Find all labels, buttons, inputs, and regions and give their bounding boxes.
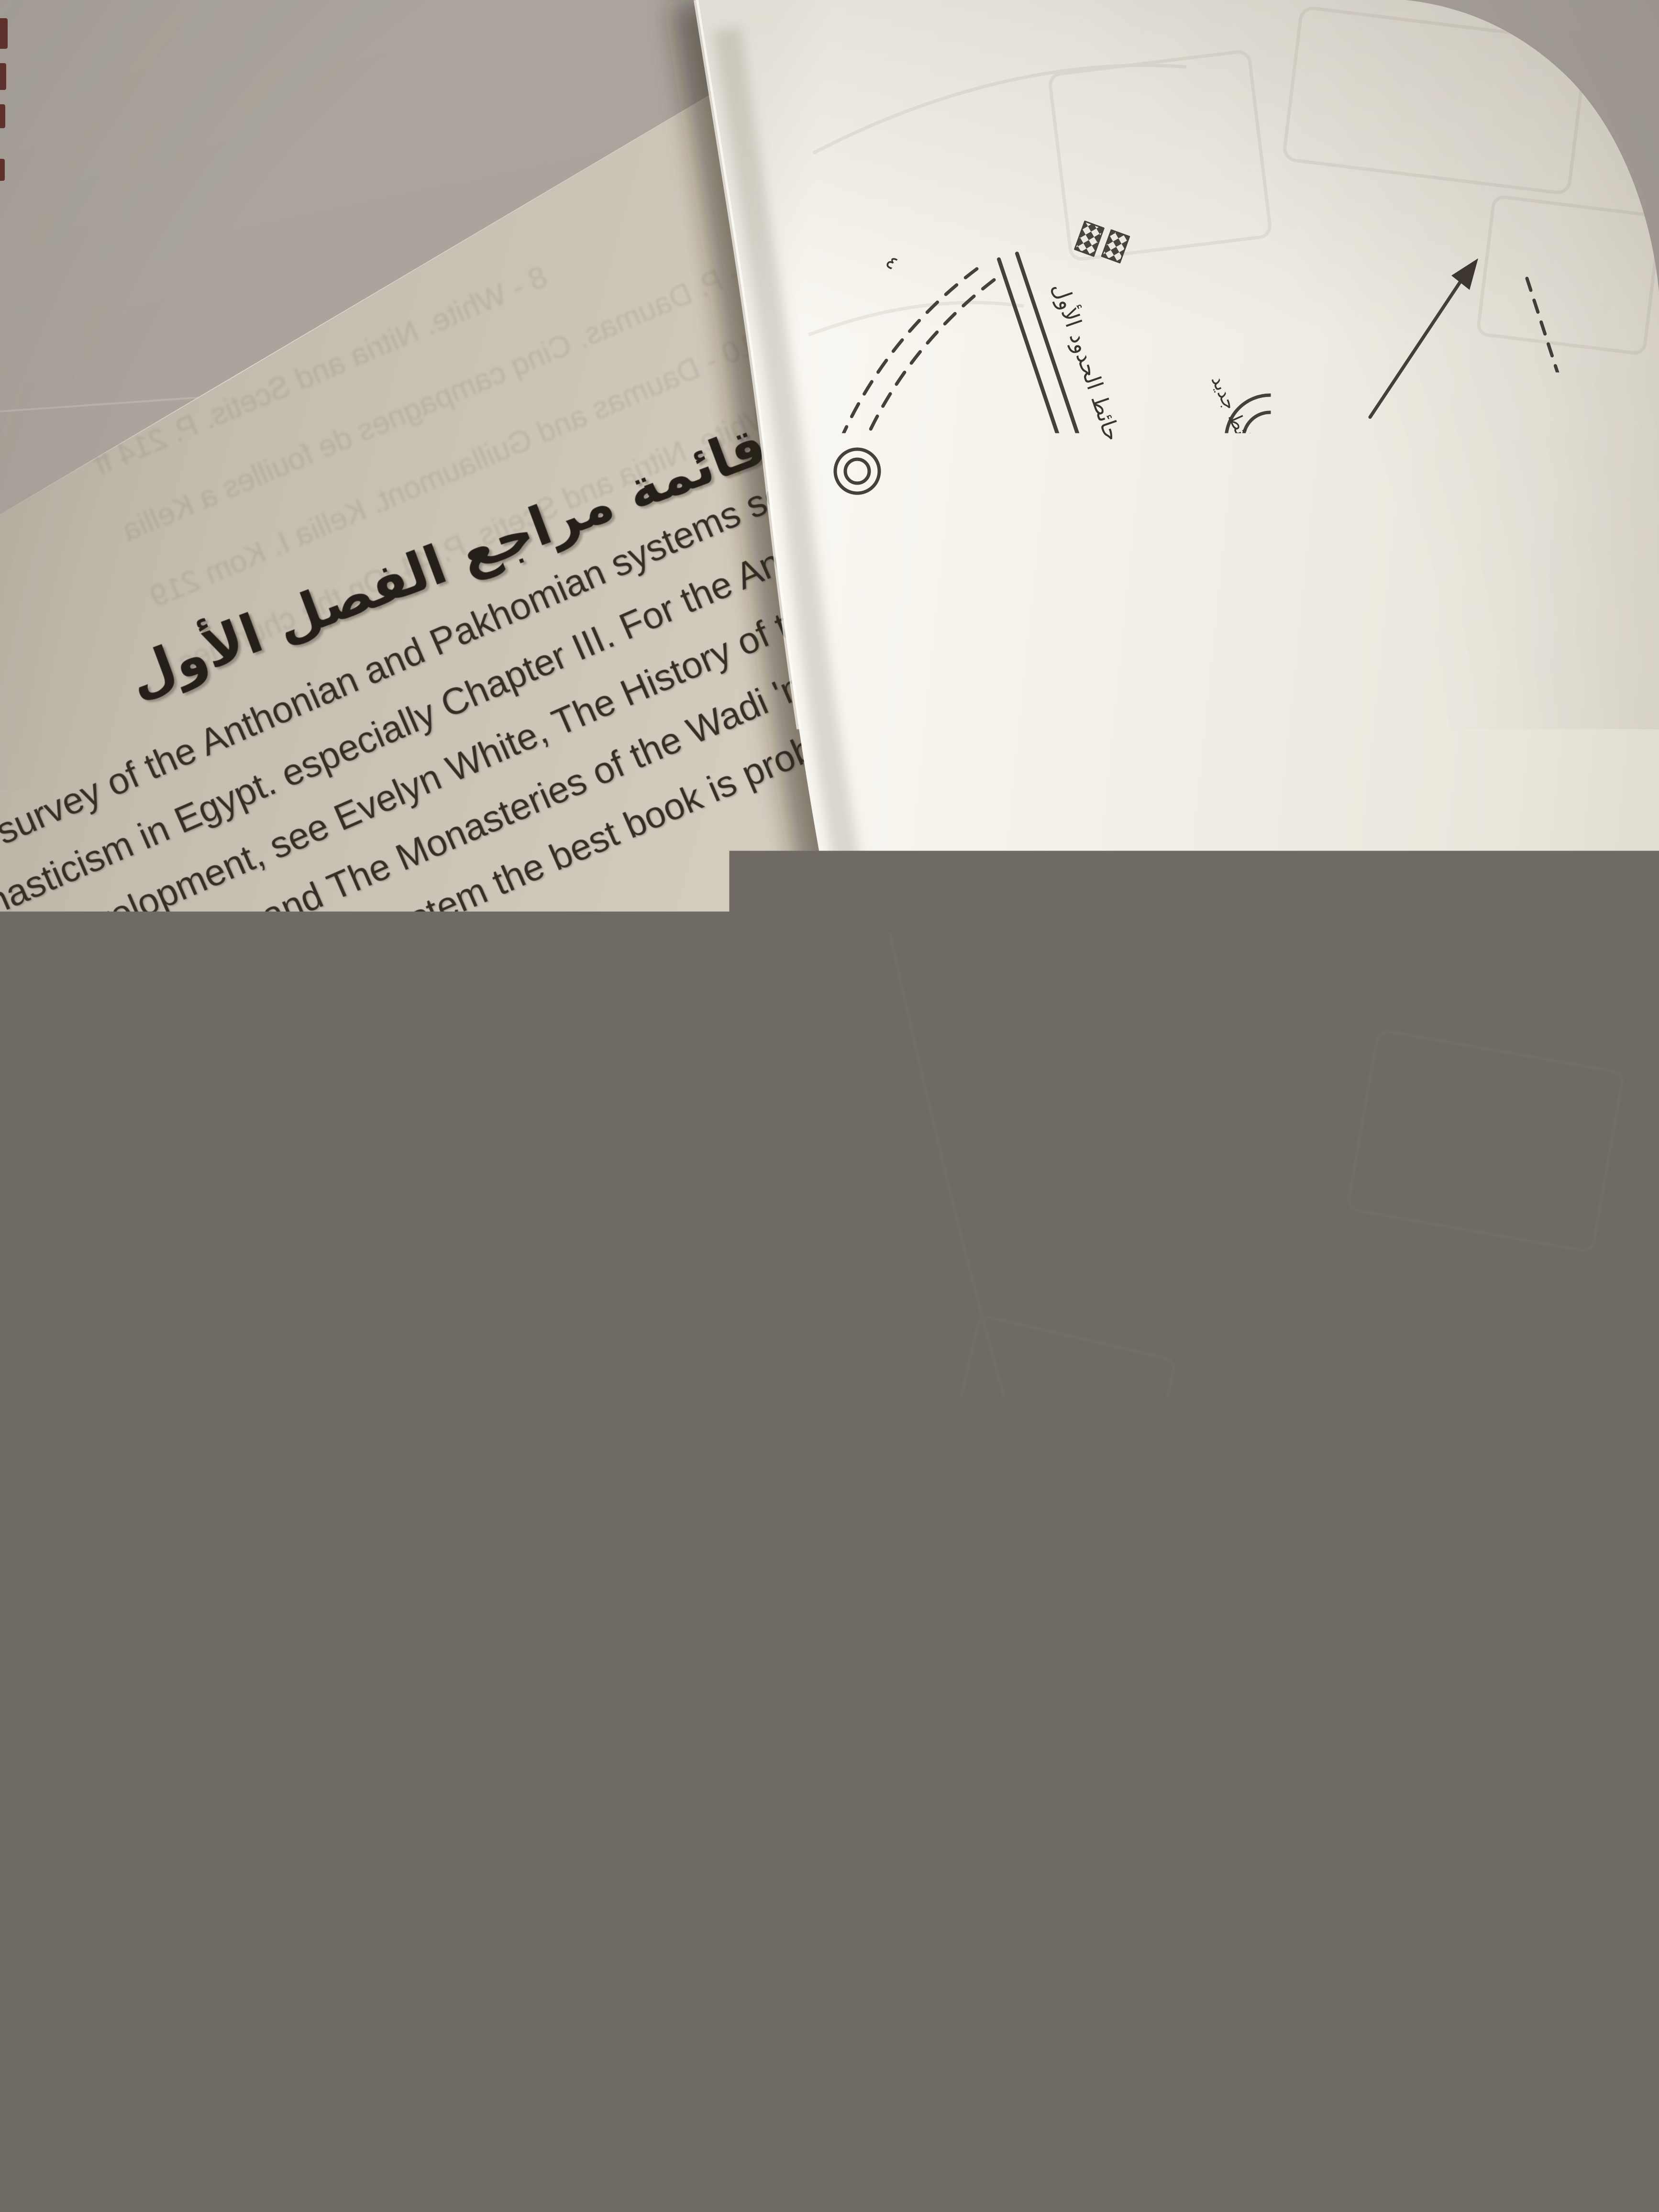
page-top-shading [670,0,1659,335]
right-page-svg: حائط الحدود الأول حائط جديد باب الدير ٤ … [0,0,1659,2212]
book-photo: 8 - White. Nitria and Scetis. P. 214 ff … [0,0,1659,2212]
